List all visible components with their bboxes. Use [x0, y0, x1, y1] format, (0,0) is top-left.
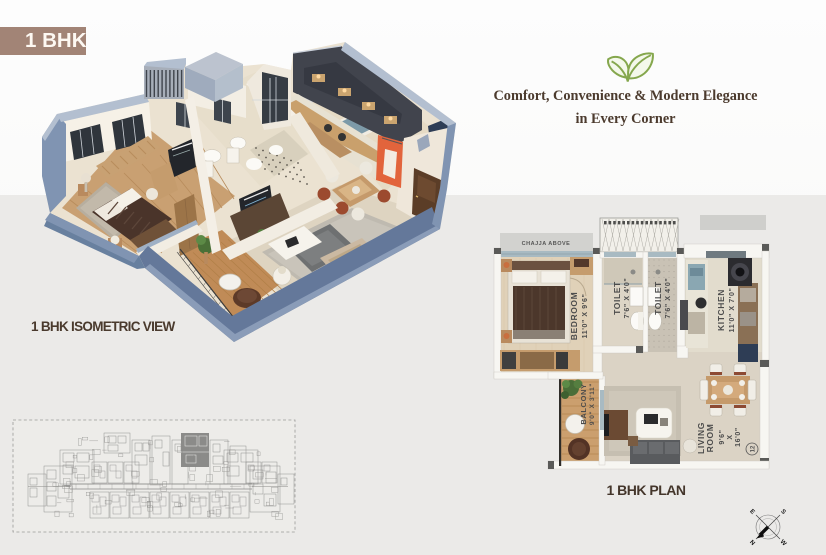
svg-text:7'6" X 4'0": 7'6" X 4'0" [665, 278, 672, 319]
svg-text:BALCONY: BALCONY [579, 383, 588, 424]
svg-text:CHAJJA ABOVE: CHAJJA ABOVE [522, 241, 571, 247]
svg-text:7'6" X 4'0": 7'6" X 4'0" [624, 278, 631, 319]
svg-text:11'0" X 9'6": 11'0" X 9'6" [582, 294, 589, 339]
svg-text:ROOM: ROOM [705, 424, 715, 453]
svg-text:9'6": 9'6" [719, 429, 726, 444]
svg-text:12: 12 [751, 445, 757, 452]
svg-text:W: W [779, 538, 788, 547]
svg-text:KITCHEN: KITCHEN [716, 289, 726, 331]
svg-text:TOILET: TOILET [653, 281, 663, 315]
svg-text:BEDROOM: BEDROOM [569, 292, 579, 341]
svg-text:S: S [779, 508, 787, 516]
svg-text:16'0": 16'0" [735, 427, 742, 447]
svg-text:N: N [748, 539, 756, 547]
svg-text:TOILET: TOILET [612, 281, 622, 315]
svg-text:11'0" X 7'0": 11'0" X 7'0" [729, 288, 736, 333]
svg-text:X: X [727, 434, 734, 439]
svg-text:9'0" X 3'11": 9'0" X 3'11" [589, 383, 596, 425]
svg-text:E: E [748, 508, 756, 516]
